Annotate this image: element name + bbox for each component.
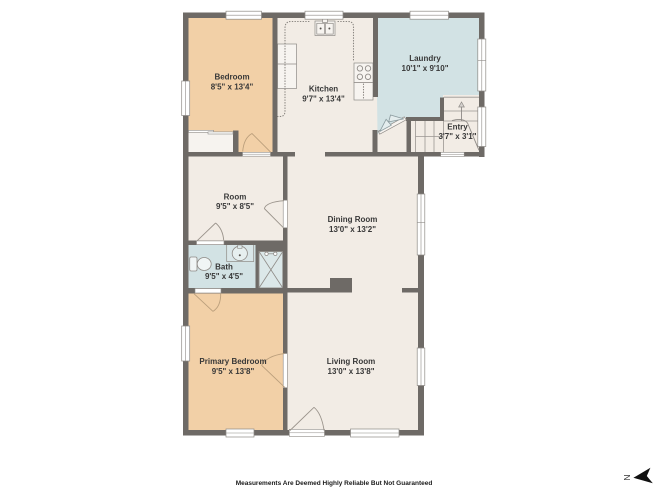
svg-text:Living Room: Living Room [327, 357, 375, 366]
svg-text:Dining Room: Dining Room [328, 215, 378, 224]
svg-text:Entry: Entry [447, 123, 468, 132]
svg-text:Measurements Are Deemed Highly: Measurements Are Deemed Highly Reliable … [236, 480, 433, 487]
svg-text:3'7" x 3'1": 3'7" x 3'1" [438, 132, 476, 141]
svg-text:13'0" x 13'8": 13'0" x 13'8" [328, 367, 375, 376]
svg-text:9'5" x 13'8": 9'5" x 13'8" [212, 367, 255, 376]
svg-text:Room: Room [224, 193, 247, 202]
svg-text:Primary Bedroom: Primary Bedroom [199, 357, 266, 366]
svg-text:8'5" x 13'4": 8'5" x 13'4" [211, 83, 254, 92]
svg-text:Kitchen: Kitchen [309, 85, 338, 94]
svg-text:N: N [622, 474, 632, 480]
svg-text:9'5" x 4'5": 9'5" x 4'5" [205, 272, 243, 281]
svg-text:Laundry: Laundry [409, 54, 441, 63]
svg-text:9'7" x 13'4": 9'7" x 13'4" [302, 95, 345, 104]
svg-text:10'1" x 9'10": 10'1" x 9'10" [402, 64, 449, 73]
svg-text:Bath: Bath [215, 263, 233, 272]
svg-text:9'5" x 8'5": 9'5" x 8'5" [216, 202, 254, 211]
svg-text:Bedroom: Bedroom [214, 73, 249, 82]
svg-text:13'0" x 13'2": 13'0" x 13'2" [329, 225, 376, 234]
